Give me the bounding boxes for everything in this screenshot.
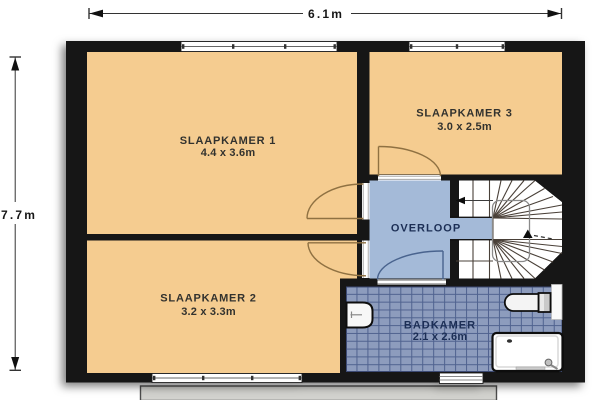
svg-text:6.1m: 6.1m bbox=[308, 7, 344, 21]
svg-text:3.0 x 2.5m: 3.0 x 2.5m bbox=[437, 121, 492, 133]
svg-text:SLAAPKAMER 3: SLAAPKAMER 3 bbox=[416, 108, 512, 120]
svg-text:7.7m: 7.7m bbox=[1, 208, 37, 222]
svg-text:SLAAPKAMER 2: SLAAPKAMER 2 bbox=[160, 293, 256, 305]
svg-text:4.4 x 3.6m: 4.4 x 3.6m bbox=[201, 147, 256, 159]
svg-text:OVERLOOP: OVERLOOP bbox=[391, 223, 461, 235]
svg-text:3.2 x 3.3m: 3.2 x 3.3m bbox=[181, 306, 236, 318]
svg-text:2.1 x 2.6m: 2.1 x 2.6m bbox=[413, 331, 468, 343]
svg-text:SLAAPKAMER 1: SLAAPKAMER 1 bbox=[180, 135, 276, 147]
svg-text:BADKAMER: BADKAMER bbox=[404, 320, 476, 332]
